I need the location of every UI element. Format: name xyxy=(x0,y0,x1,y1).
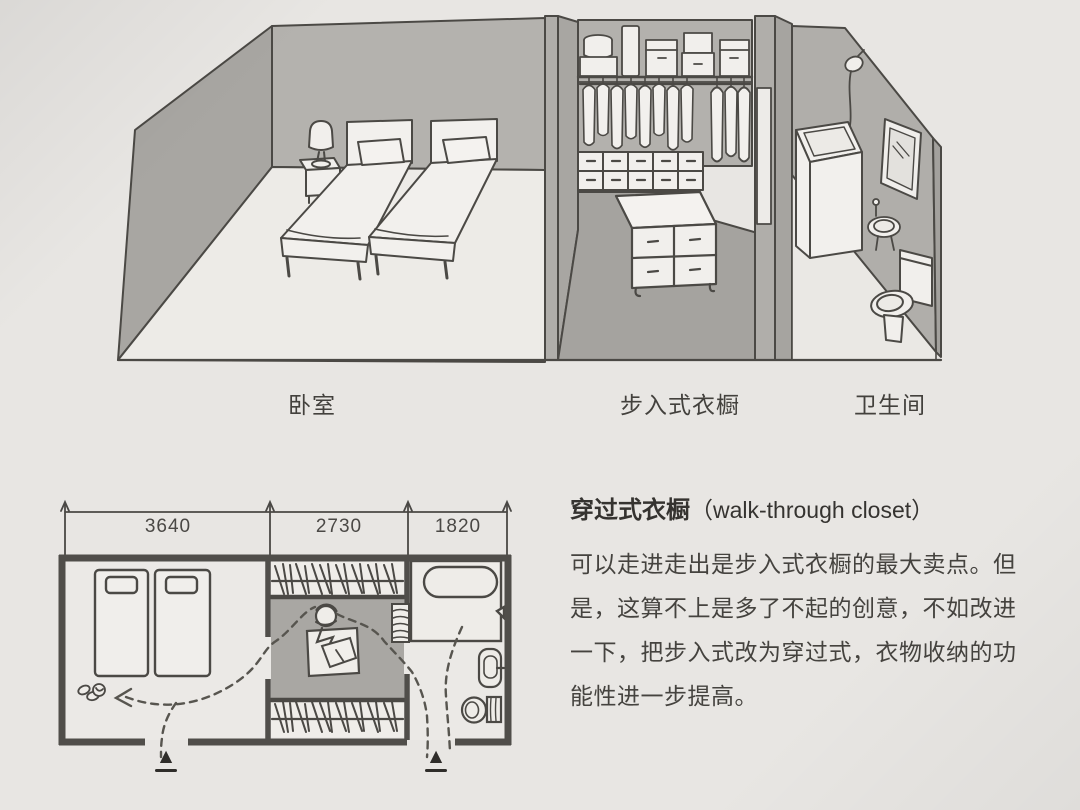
article: 穿过式衣橱（walk-through closet） 可以走进走出是步入式衣橱的… xyxy=(570,490,1070,718)
entry-underline xyxy=(425,769,447,772)
iso-bedroom xyxy=(118,18,545,362)
iso-bathroom xyxy=(755,16,941,360)
iso-walk-in-closet xyxy=(545,16,775,360)
plan-toilet-icon xyxy=(462,697,501,723)
article-title: 穿过式衣橱（walk-through closet） xyxy=(570,490,1070,525)
drawer-unit-icon xyxy=(578,152,703,190)
island-dresser-icon xyxy=(616,192,716,296)
room-label-closet: 步入式衣橱 xyxy=(620,386,740,420)
entry-marker-bedroom: ▲ xyxy=(151,748,181,772)
entry-arrow-icon: ▲ xyxy=(421,748,451,766)
entry-underline xyxy=(155,769,177,772)
plan-bathtub-icon xyxy=(411,561,504,641)
article-title-zh: 穿过式衣橱 xyxy=(570,497,690,524)
bathtub-icon xyxy=(796,122,862,258)
article-line: 能性进一步提高。 xyxy=(570,674,1070,718)
plan-closet-hatch-bottom xyxy=(271,700,404,737)
floor-plan-drawing xyxy=(59,502,511,757)
entry-marker-bathroom: ▲ xyxy=(421,748,451,772)
plan-bed-icon xyxy=(155,570,210,676)
article-title-en: （walk-through closet） xyxy=(690,497,934,523)
dim-label-bathroom: 1820 xyxy=(435,516,481,538)
dim-label-bedroom: 3640 xyxy=(145,516,191,538)
closet-bathroom-doorway xyxy=(757,88,771,224)
dim-label-closet: 2730 xyxy=(316,516,362,538)
plan-towel-rack-icon xyxy=(392,604,409,642)
room-label-bathroom: 卫生间 xyxy=(854,386,926,420)
article-line: 是，这算不上是多了不起的创意，不如改进 xyxy=(570,586,1070,630)
plan-bed-icon xyxy=(95,570,148,676)
article-line: 一下，把步入式改为穿过式，衣物收纳的功 xyxy=(570,630,1070,674)
entry-arrow-icon: ▲ xyxy=(151,748,181,766)
plan-closet-hatch-top xyxy=(271,561,404,597)
book-page: 卧室 步入式衣橱 卫生间 3640 2730 1820 ▲ ▲ 穿过式衣橱（wa… xyxy=(0,0,1080,810)
article-line: 可以走进走出是步入式衣橱的最大卖点。但 xyxy=(570,542,1070,586)
plan-sink-icon xyxy=(479,649,504,687)
room-label-bedroom: 卧室 xyxy=(288,386,336,420)
iso-illustration xyxy=(118,16,941,362)
